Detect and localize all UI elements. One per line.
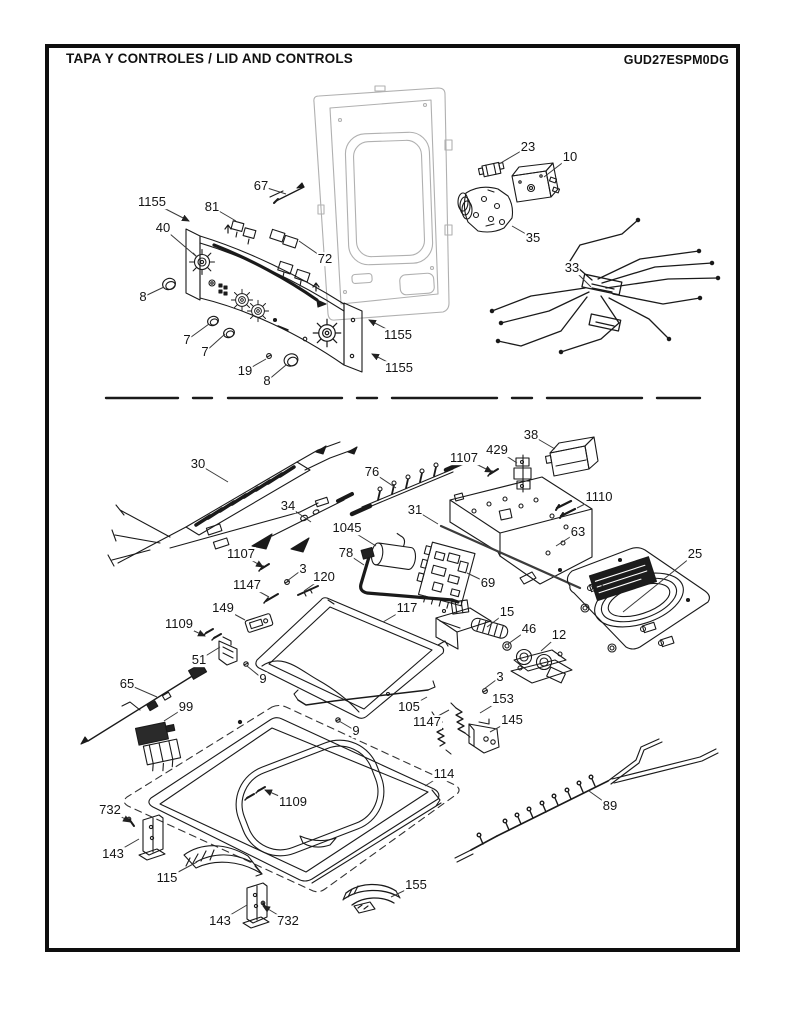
leader-line-25-40 [623,554,695,612]
leader-line-35-14 [512,226,533,238]
leader-line-1107-27 [241,554,263,567]
leader-line-15-36 [487,612,507,627]
leader-line-30-16 [198,464,228,482]
leader-line-31-24 [415,510,438,524]
leader-line-1155-0 [152,202,189,221]
leader-line-155-56 [391,885,416,897]
leader-line-33-15 [572,268,591,287]
leader-line-732-51 [110,810,130,822]
leader-line-51-33 [199,647,220,660]
leader-line-1109-32 [179,624,205,636]
leader-line-143-52 [113,839,139,854]
leader-line-143-54 [220,905,247,921]
leader-line-38-21 [531,435,555,449]
leader-line-34-17 [288,506,311,522]
leader-line-23-12 [499,147,528,164]
leader-line-3-41 [484,677,500,689]
leader-line-117-35 [383,608,407,622]
leader-line-1155-11 [372,354,399,368]
leader-line-99-48 [164,707,186,721]
leader-line-65-47 [127,684,157,697]
leader-line-7-6 [187,324,209,340]
leader-line-114-49 [425,774,444,786]
leader-line-81-3 [212,207,236,221]
leader-lines-layer [0,0,791,1024]
leader-line-7-7 [205,334,225,352]
leader-line-145-43 [490,720,512,732]
leader-line-1109-50 [265,790,293,802]
leader-line-1147-30 [247,585,269,597]
leader-line-46-37 [508,629,529,644]
leader-line-3-28 [287,569,303,581]
leader-line-1110-22 [577,497,599,508]
leader-line-12-38 [541,635,559,651]
model-number: GUD27ESPM0DG [624,53,729,67]
leader-line-1107-19 [464,458,492,472]
page-title: TAPA Y CONTROLES / LID AND CONTROLS [66,51,353,66]
leader-line-1045-25 [347,528,376,546]
leader-line-1155-10 [369,320,398,335]
leader-line-429-20 [497,450,517,463]
leader-line-153-42 [480,699,503,713]
leader-line-115-53 [167,862,197,878]
leader-line-732-55 [263,906,288,921]
leader-line-9-46 [339,721,356,731]
leader-line-8-9 [267,365,286,381]
leader-line-89-57 [589,791,610,806]
leader-line-9-34 [247,666,263,679]
leader-line-10-13 [544,157,570,177]
leader-line-67-2 [261,186,286,194]
leader-line-149-31 [223,608,245,620]
leader-line-40-1 [163,228,197,257]
leader-line-72-4 [299,241,325,259]
leader-line-120-29 [304,577,324,591]
parts-diagram-page: TAPA Y CONTROLES / LID AND CONTROLS GUD2… [0,0,791,1024]
leader-line-19-8 [245,359,266,371]
leader-line-78-26 [346,553,364,565]
leader-line-69-39 [467,573,488,583]
leader-line-1147-45 [427,710,449,722]
leader-line-63-23 [556,532,578,546]
leader-line-76-18 [372,472,396,488]
leader-line-105-44 [409,697,427,707]
leader-line-8-5 [143,287,164,297]
